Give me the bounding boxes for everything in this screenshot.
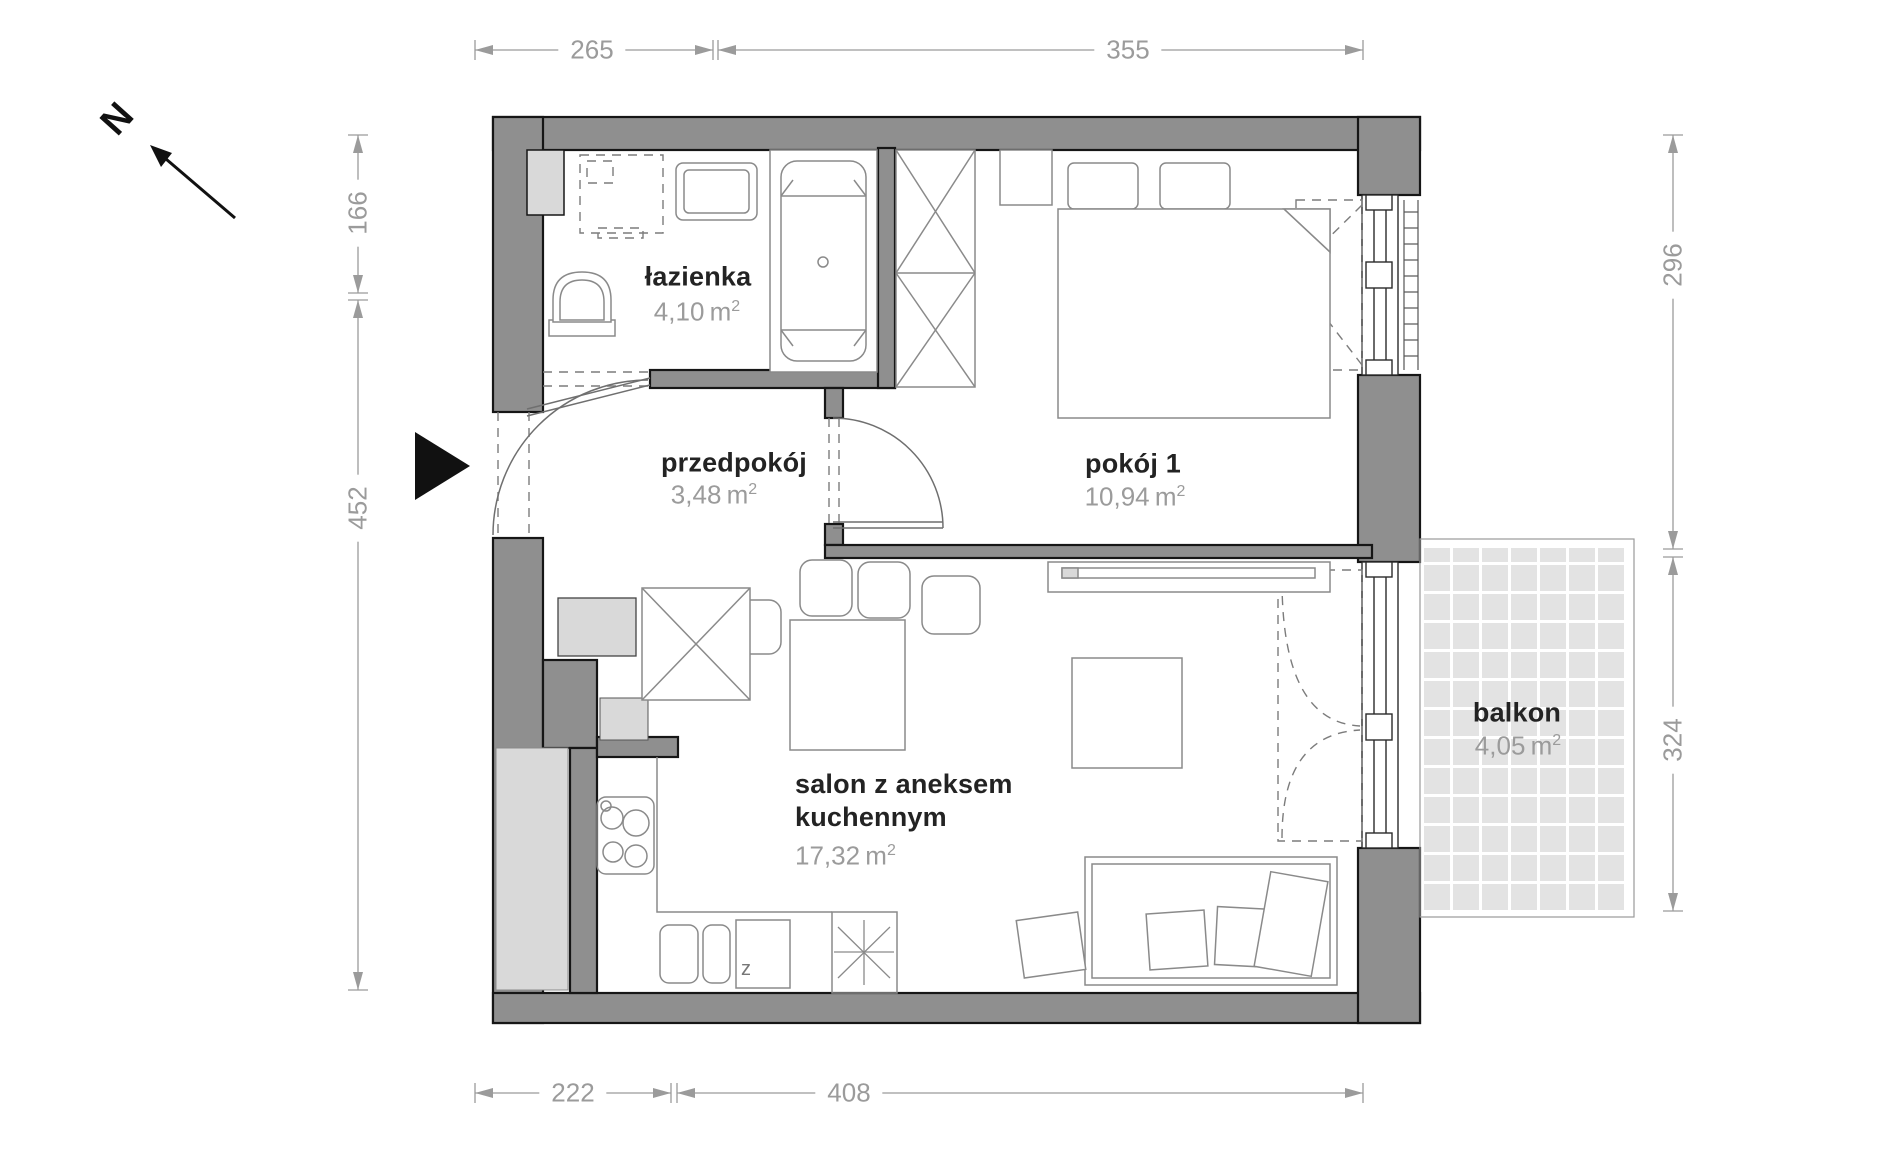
wall-bathroom-east bbox=[878, 148, 895, 388]
pokoj-furniture bbox=[896, 150, 1330, 418]
nightstand bbox=[1000, 150, 1052, 205]
dim-right-2: 324 bbox=[1658, 706, 1689, 773]
light-point-icon bbox=[834, 920, 894, 985]
dim-top-1: 265 bbox=[558, 35, 625, 66]
pokoj-door-arc bbox=[833, 418, 943, 528]
window-salon-frame bbox=[1362, 562, 1398, 848]
washing-machine bbox=[580, 155, 663, 233]
wall-kitchen-block bbox=[543, 660, 597, 748]
wall-bottom bbox=[493, 993, 1420, 1023]
dim-left-2: 452 bbox=[343, 474, 374, 541]
dim-right-1: 296 bbox=[1658, 231, 1689, 298]
sink-basin bbox=[703, 925, 730, 983]
window-salon-handle bbox=[1366, 714, 1392, 740]
dim-left-1: 166 bbox=[343, 179, 374, 246]
room-label-balkon: balkon bbox=[1473, 698, 1561, 729]
room-label-przedpokoj: przedpokój bbox=[661, 448, 807, 479]
wall-top bbox=[493, 117, 1420, 150]
wall-right-mid-pier bbox=[1358, 375, 1420, 562]
wall-hall-door-stub-top bbox=[825, 388, 843, 418]
bathroom-door-leaf bbox=[527, 378, 650, 409]
kitchen-tall-units bbox=[496, 748, 568, 990]
french-balcony-railing bbox=[1404, 200, 1418, 370]
window-pokoj-cap-bottom bbox=[1366, 360, 1392, 375]
entrance-arrow-icon bbox=[415, 432, 470, 500]
pouf bbox=[1016, 912, 1085, 978]
sofa-cushion bbox=[1146, 910, 1208, 970]
room-label-salon: salon z aneksem kuchennym 17,32 m2 bbox=[795, 768, 1013, 873]
wall-right-bottom-pier bbox=[1358, 848, 1420, 1023]
room-label-pokoj1: pokój 1 bbox=[1085, 449, 1181, 480]
window-salon-cap-top bbox=[1366, 562, 1392, 577]
bed bbox=[1058, 209, 1330, 418]
north-arrow-icon bbox=[150, 145, 235, 218]
dim-bottom-1: 222 bbox=[539, 1078, 606, 1109]
room-label-lazienka: łazienka bbox=[645, 262, 752, 293]
radiator bbox=[1062, 568, 1315, 578]
bed-pillow bbox=[1068, 163, 1138, 209]
fridge bbox=[600, 698, 648, 740]
wardrobe bbox=[896, 150, 975, 387]
room-area-przedpokoj: 3,48 m2 bbox=[671, 480, 757, 511]
room-area-lazienka: 4,10 m2 bbox=[654, 297, 740, 328]
dining-table bbox=[790, 620, 905, 750]
room-area-balkon: 4,05 m2 bbox=[1475, 731, 1561, 762]
bed-pillow bbox=[1160, 163, 1230, 209]
dining-chair bbox=[800, 560, 852, 616]
wall-pokoj-salon bbox=[825, 545, 1372, 558]
kitchen-shaft bbox=[558, 598, 636, 656]
window-pokoj-cap-top bbox=[1366, 195, 1392, 210]
floorplan-drawing bbox=[0, 0, 1900, 1166]
bathroom-shaft bbox=[527, 150, 564, 215]
room-area-pokoj1: 10,94 m2 bbox=[1085, 482, 1186, 513]
wall-hall-door-stub-bottom bbox=[825, 524, 843, 545]
wall-right-top-pier bbox=[1358, 117, 1420, 195]
dim-bottom-2: 408 bbox=[815, 1078, 882, 1109]
window-salon-swing bbox=[1278, 570, 1362, 841]
dishwasher-label: z bbox=[741, 958, 751, 981]
wall-kitchen-strip bbox=[570, 748, 597, 993]
floorplan-page: N 265 355 222 408 166 452 296 324 łazien… bbox=[0, 0, 1900, 1166]
bathtub-drain bbox=[818, 257, 828, 267]
dining-chair bbox=[922, 576, 980, 634]
sink-basin bbox=[660, 925, 698, 983]
dining-chair bbox=[858, 562, 910, 618]
dim-top-2: 355 bbox=[1094, 35, 1161, 66]
window-salon-cap-bottom bbox=[1366, 833, 1392, 848]
coffee-table bbox=[1072, 658, 1182, 768]
window-pokoj-handle bbox=[1366, 262, 1392, 288]
